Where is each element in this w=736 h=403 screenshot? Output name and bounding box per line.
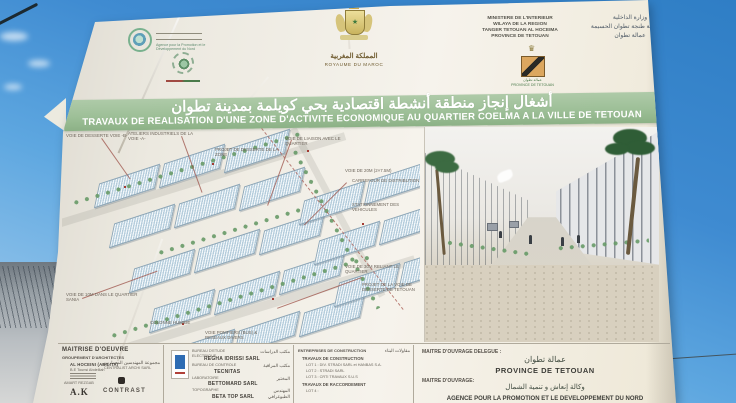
render-plaza-paving (425, 265, 659, 342)
owner-name-fr: AGENCE POUR LA PROMOTION ET LE DEVELOPPE… (430, 396, 660, 402)
bureau-label: BUREAU DE CONTROLE (192, 363, 250, 368)
logo-rule (156, 33, 202, 34)
delegue-name-fr: PROVINCE DE TETOUAN (450, 366, 640, 375)
truck (487, 223, 498, 231)
marker-dot (307, 150, 309, 152)
bureau-value: TECNITAS (214, 369, 240, 375)
apdn-caption-line2: Développement du Nord (156, 47, 236, 51)
bet-logo-icon (175, 355, 185, 369)
contrast-logo: CONTRAST (103, 388, 146, 394)
province-crown-icon: ♛ (528, 44, 535, 53)
bureau-label: TOPOGRAPHE (192, 388, 250, 393)
bureau-label-ar: مكتب الدراسات (252, 349, 290, 355)
travaux-raccordement-label: TRAVAUX DE RACCORDEMENT (302, 382, 366, 387)
pentagram-icon: ★ (352, 19, 358, 26)
association-logo-icon (172, 52, 194, 74)
ministry-ar-line1: وزارة الداخلية (575, 14, 685, 23)
plan-annotation: VOIE DE 30m RELIANT LE QUARTIER (345, 264, 417, 274)
coat-of-arms-icon: ★ (332, 4, 376, 48)
photo-of-billboard: Agence pour la Promotion et le Développe… (0, 0, 736, 403)
bureau-label-ar: المختبر (252, 376, 290, 382)
province-emblem-caption-ar: عمالة تطوان (505, 78, 560, 82)
province-shield-icon (521, 56, 545, 77)
lot2: LOT 2 : STRADI SARL (306, 369, 345, 374)
logo2-caption: CENTRALIST ARCHI SARL (104, 366, 156, 371)
address-lines (70, 373, 96, 379)
plan-annotation: CARREFOUR DE DISTRIBUTION (352, 178, 419, 183)
paper-glare (496, 169, 514, 184)
plan-annotation: STATIONNEMENT DES VEHICULES (352, 202, 420, 212)
bureau-label-ar: المهندس الطبوغرافي (252, 388, 290, 400)
perspective-render (424, 127, 659, 342)
plan-annotation: PROJET DE LA VOIE DE DESSERTE DE TETOUAN (362, 282, 420, 292)
logo1-caption: AMART REZGAB (64, 381, 94, 386)
association-emblem-icon (178, 58, 190, 70)
plan-hangar-block (109, 204, 175, 249)
plan-annotation: VOIE DE DESSERTE VOIE -B- (66, 133, 127, 138)
bureau-label-ar: مكتب المراقبة (252, 363, 290, 369)
footer-divider (58, 343, 670, 344)
apdn-logo-icon (128, 28, 152, 52)
travaux-construction-label: TRAVAUX DE CONSTRUCTION (302, 356, 364, 361)
ministry-ar-line2: ولاية جهة طنجة تطوان الحسيمة (575, 23, 685, 32)
footer-divider (293, 345, 294, 403)
logo-rule (156, 39, 202, 40)
kingdom-title-fr: ROYAUME DU MAROC (318, 62, 390, 67)
architect-name-2: B.E Tounsi Abdelilah (70, 368, 105, 373)
province-emblem-caption-fr: PROVINCE DE TETOUAN (505, 83, 560, 87)
ministry-block-fr: MINISTERE DE L'INTERIEUR WILAYA DE LA RE… (455, 16, 585, 40)
bureau-value: BETTOMARD SARL (208, 381, 258, 387)
footer-divider (163, 345, 164, 403)
plan-annotation: PROJET DE DESSERTE DE LA ZONE (215, 147, 287, 157)
entreprises-title-ar: مقاولات البناء (370, 348, 410, 354)
person-figure (499, 231, 502, 238)
lot4: LOT 4 : (306, 389, 319, 394)
plan-annotation: ATELIERS INDUSTRIELS DE LA VOIE -A- (128, 131, 200, 141)
delegue-name-ar: عمالة تطوان (470, 355, 620, 364)
entreprises-title: ENTREPRISES DE CONSTRUCTION (298, 348, 366, 353)
motto-banner-icon (340, 35, 368, 40)
contrast-logo-mark-icon (118, 377, 125, 384)
footer-divider (413, 345, 414, 403)
plan-annotation: VOIE DE LIAISON AVEC LE QUARTIER (285, 136, 357, 146)
crown-icon (349, 4, 359, 9)
plan-annotation: VOIE POMPIERS (BUS) & RESEAUX DIVERS (205, 330, 277, 340)
billboard-wrap: Agence pour la Promotion et le Développe… (0, 0, 736, 403)
bureau-value: BETA TOP SARL (212, 394, 254, 400)
bureau-value: REGHA IDRISSI SARL (204, 356, 260, 362)
truck (509, 221, 519, 228)
lot3: LOT 3 : CRTI TRAVAUX S.U.S (306, 375, 358, 380)
ministry-ar-line3: عمالة تطوان (575, 32, 685, 41)
marker-dot (272, 298, 274, 300)
annotation-line (101, 138, 130, 180)
maitrise-oeuvre-title: MAITRISE D'OEUVRE (62, 347, 129, 353)
ministry-block-ar: وزارة الداخلية ولاية جهة طنجة تطوان الحس… (575, 14, 685, 41)
ministry-fr-line4: PROVINCE DE TETOUAN (455, 34, 585, 40)
apdn-caption: Agence pour la Promotion et le Développe… (156, 43, 236, 52)
apdn-swirl-icon (133, 33, 147, 47)
lot1: LOT 1 : DIV. STRADI SARL et HANBAS S.A. (306, 363, 382, 368)
owner-name-ar: وكالة إنعاش و تنمية الشمال (460, 383, 630, 391)
marker-dot (124, 186, 126, 188)
shield-icon: ★ (345, 10, 365, 35)
plan-annotation: COLONNE HUMIDE (150, 320, 190, 325)
plan-hangar-block (174, 184, 240, 229)
billboard: Agence pour la Promotion et le Développe… (0, 0, 736, 403)
bet-logo-card (171, 350, 189, 379)
site-plan: VOIE DE DESSERTE VOIE -B- ATELIERS INDUS… (62, 128, 420, 344)
plan-annotation: VOIE DE 10m DANS LE QUARTIER SANIA (66, 292, 138, 302)
kingdom-title-ar: المملكة المغربية (318, 52, 390, 60)
person-figure (561, 237, 564, 246)
bet-logo-underline (175, 372, 185, 374)
project-title-banner: أشغال إنجاز منطقة أنشطة اقتصادية بحي كوي… (64, 92, 660, 131)
person-figure (577, 235, 580, 243)
marker-dot (362, 223, 364, 225)
association-caption-line (166, 80, 200, 82)
palm-fronds-icon (605, 143, 629, 155)
ak-logo: A.K (70, 387, 89, 397)
palm-fronds-icon (625, 141, 655, 155)
marker-dot (212, 163, 214, 165)
plan-annotation: VOIE DE 20m (2×7.5m) (345, 168, 391, 173)
palm-fronds-icon (435, 161, 459, 173)
person-figure (529, 235, 532, 244)
bureau-label: LABORATOIRE (192, 376, 250, 381)
